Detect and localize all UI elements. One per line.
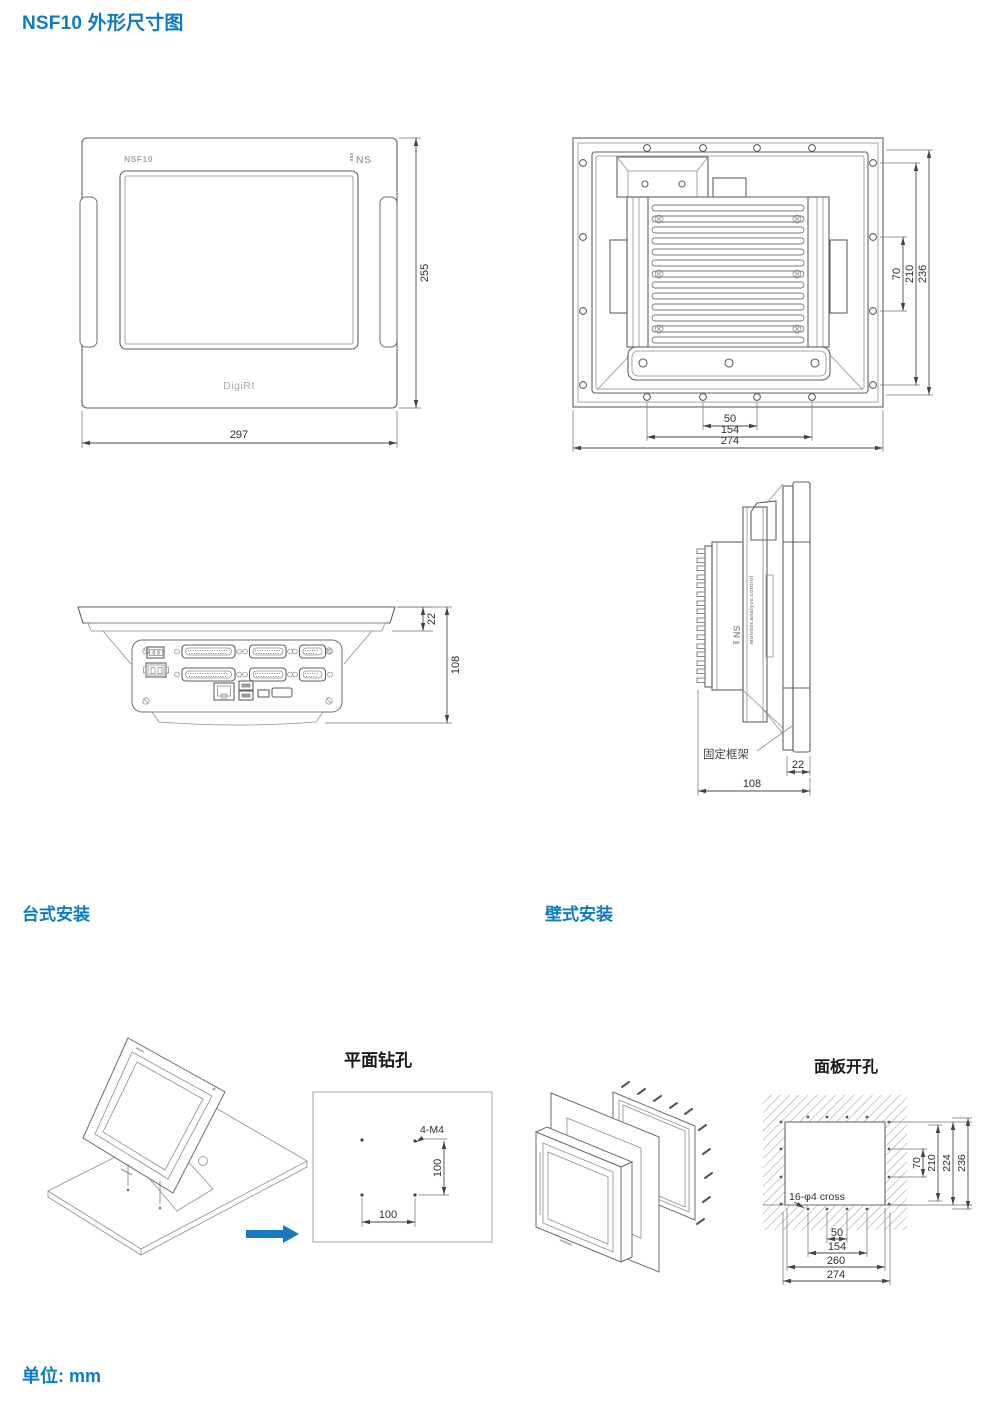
- drill-dim-vertical: 100: [419, 1141, 449, 1195]
- svg-text:16-φ4 cross: 16-φ4 cross: [789, 1191, 845, 1203]
- svg-text:70: 70: [891, 268, 903, 280]
- svg-text:4-M4: 4-M4: [420, 1124, 444, 1136]
- side-bezel: [783, 482, 810, 752]
- arrow-right-icon: [246, 1225, 299, 1243]
- svg-text:22: 22: [792, 759, 804, 771]
- svg-text:70: 70: [911, 1157, 923, 1169]
- wall-mount-heading: 壁式安装: [545, 900, 613, 925]
- side-heatsink-fins: [697, 546, 712, 687]
- bottom-dim-bezel: 22: [392, 607, 438, 631]
- desktop-mount-drawing: [30, 1030, 310, 1280]
- side-tagline: monitor.analyze.control: [749, 576, 755, 645]
- side-view-drawing: NS monitor.analyze.control 固定框架 22 108: [635, 475, 885, 805]
- page-title: NSF10 外形尺寸图: [22, 8, 184, 35]
- bottom-dim-depth: 108: [325, 607, 462, 723]
- rear-heatsink: [610, 197, 847, 347]
- rear-mounting-holes: [580, 145, 877, 401]
- svg-text:224: 224: [941, 1154, 953, 1172]
- svg-text:22: 22: [426, 613, 438, 625]
- front-dim-width: 297: [82, 411, 397, 448]
- front-body: [80, 138, 397, 408]
- svg-text:154: 154: [828, 1241, 846, 1253]
- svg-text:260: 260: [827, 1255, 845, 1267]
- front-model-label: NSF10: [124, 154, 153, 164]
- svg-text:236: 236: [917, 265, 929, 283]
- rear-side-tab-left: [610, 240, 627, 313]
- drill-holes: [360, 1138, 416, 1196]
- unit-label: 单位: mm: [22, 1362, 101, 1388]
- svg-text:NS: NS: [356, 154, 372, 166]
- rear-view-drawing: 70 210 236 50 154 274: [555, 125, 955, 465]
- svg-text:210: 210: [926, 1154, 938, 1172]
- desktop-mount-heading: 台式安装: [22, 900, 90, 925]
- front-dim-height: 255: [399, 138, 431, 408]
- svg-text:297: 297: [230, 429, 248, 441]
- side-dim-bezel: 22: [787, 756, 810, 776]
- front-view-drawing: NSF10 NS DigiRt 255 297: [50, 125, 470, 460]
- surface-drill-drawing: 4-M4 100 100: [300, 1085, 510, 1250]
- svg-text:274: 274: [721, 435, 739, 447]
- front-screen: [125, 176, 353, 344]
- rear-top-bracket: [617, 157, 746, 197]
- bottom-view-drawing: 22 108: [45, 595, 465, 735]
- svg-text:50: 50: [831, 1227, 843, 1239]
- svg-text:固定框架: 固定框架: [703, 747, 749, 761]
- side-ns-logo-icon: NS: [732, 625, 742, 644]
- svg-text:255: 255: [419, 264, 431, 282]
- drill-hole-callout: 4-M4: [416, 1124, 447, 1142]
- drill-dim-horizontal: 100: [362, 1198, 415, 1227]
- svg-text:NS: NS: [732, 625, 742, 638]
- rear-dim-vertical-70: 70: [880, 237, 907, 311]
- desk-monitor: [83, 1038, 225, 1193]
- side-body: [712, 484, 783, 734]
- svg-text:100: 100: [379, 1209, 397, 1221]
- svg-text:108: 108: [450, 656, 462, 674]
- svg-text:274: 274: [827, 1269, 845, 1281]
- surface-drill-title: 平面钻孔: [344, 1046, 412, 1071]
- front-brand-label: DigiRt: [223, 380, 255, 392]
- svg-text:210: 210: [904, 265, 916, 283]
- panel-cutout-drawing: 16-φ4 cross 70 210 224 236 50 154: [755, 1090, 995, 1290]
- rear-side-tab-right: [830, 240, 847, 313]
- panel-cutout-title: 面板开孔: [814, 1053, 878, 1077]
- svg-text:108: 108: [743, 778, 761, 790]
- cutout-dim-v210: 210: [926, 1125, 942, 1201]
- wall-mount-drawing: [525, 1078, 725, 1278]
- ns-logo-icon: NS: [350, 154, 372, 167]
- cutout-dim-v236: 236: [952, 1118, 972, 1209]
- drill-plate: [313, 1092, 492, 1242]
- rear-bottom-bracket: [628, 347, 830, 380]
- svg-text:100: 100: [432, 1159, 444, 1177]
- fixing-frame-callout: 固定框架: [703, 726, 792, 761]
- svg-text:236: 236: [956, 1154, 968, 1172]
